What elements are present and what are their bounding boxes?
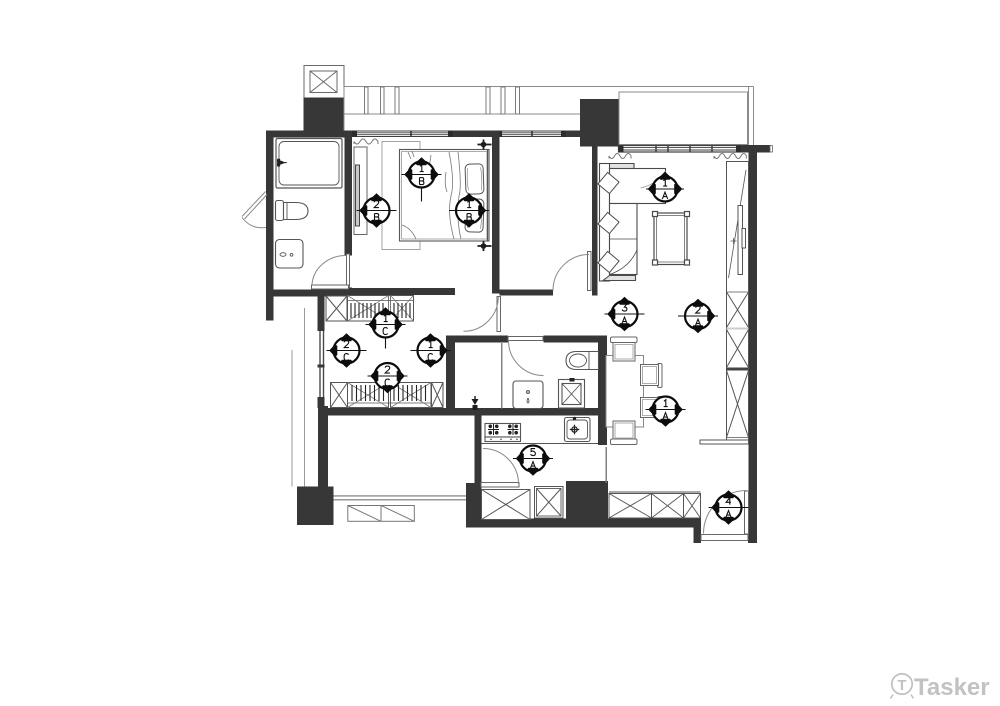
- svg-text:T: T: [897, 677, 906, 694]
- svg-text:Tasker: Tasker: [914, 674, 990, 701]
